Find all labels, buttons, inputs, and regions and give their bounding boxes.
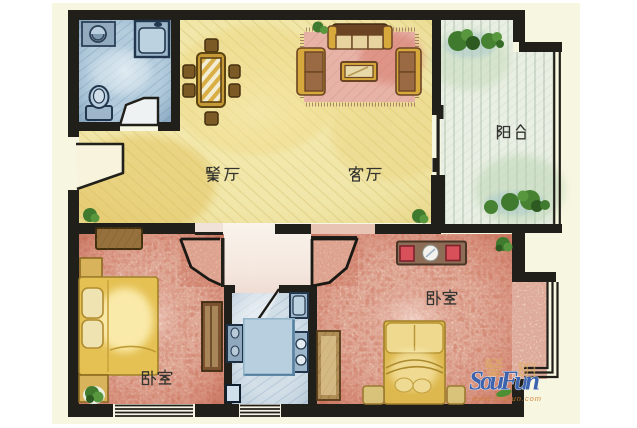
svg-text:www.soufun.com: www.soufun.com — [472, 394, 541, 403]
svg-text:SouFun: SouFun — [469, 366, 540, 396]
